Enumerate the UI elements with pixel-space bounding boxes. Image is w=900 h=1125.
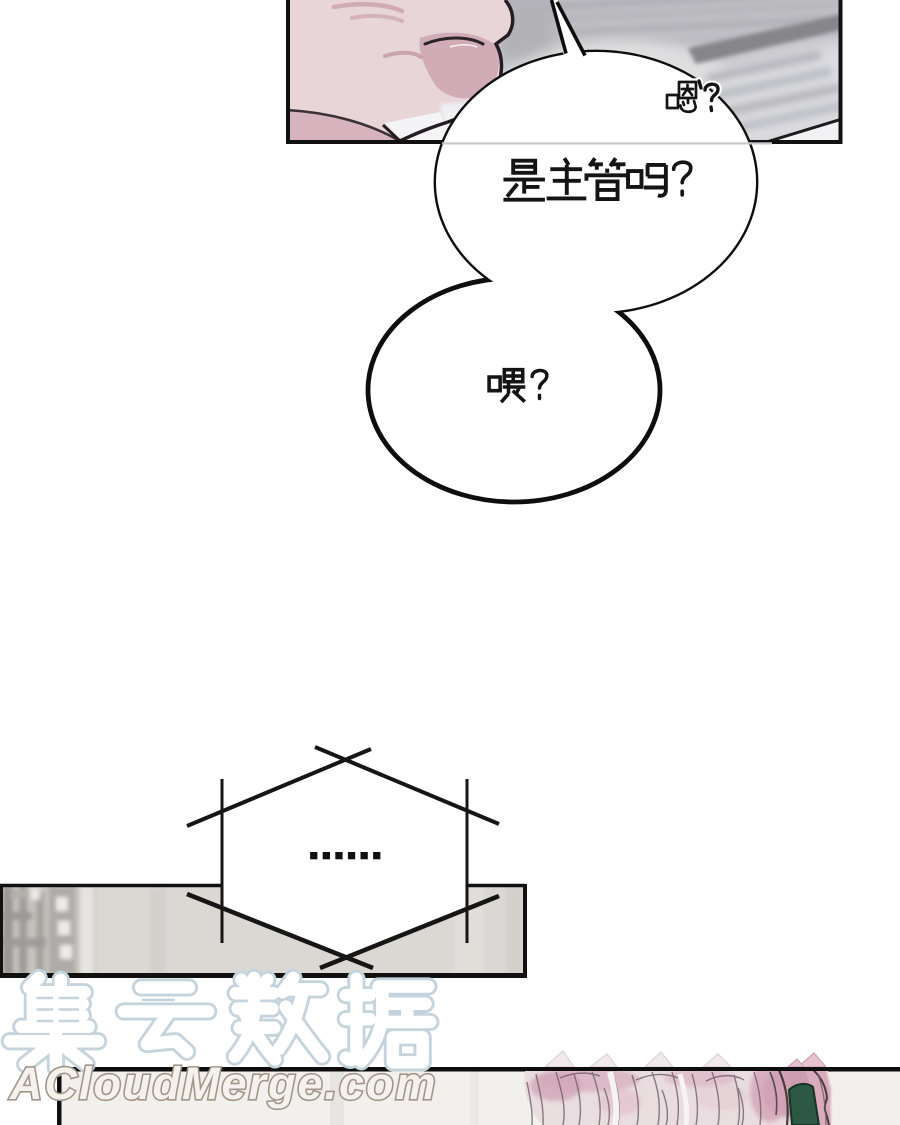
svg-text:ACloudMerge.com: ACloudMerge.com [9,1058,438,1109]
